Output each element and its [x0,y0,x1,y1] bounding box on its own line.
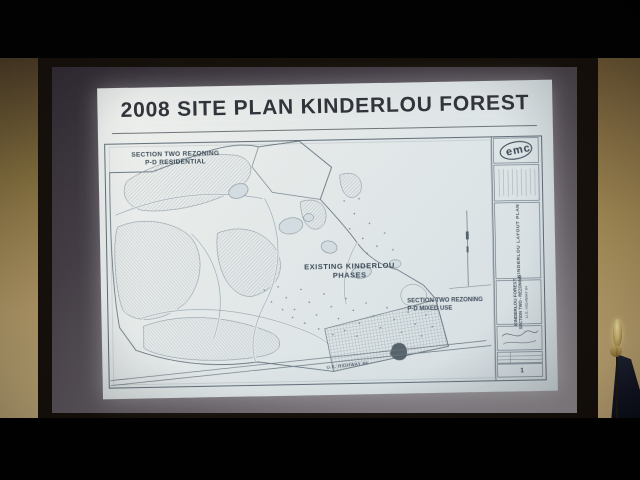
label-line: P-D MIXED USE [407,305,452,312]
projector-screen-frame: 2008 SITE PLAN KINDERLOU FOREST [38,54,598,420]
label-existing-kinderlou-phases: EXISTING KINDERLOU PHASES [290,260,408,280]
photo-of-projected-site-plan: 2008 SITE PLAN KINDERLOU FOREST [0,0,640,480]
label-line: SECTION TWO REZONING [407,297,483,304]
slide-title: 2008 SITE PLAN KINDERLOU FOREST [97,91,552,124]
black-band-bottom [0,418,640,480]
wall-left [0,50,42,422]
title-underline [112,125,537,134]
titleblock-drawing-name: KINDERLOU LAYOUT PLAN [496,202,542,279]
screen-surface: 2008 SITE PLAN KINDERLOU FOREST [52,67,577,413]
site-plan-drawing: SECTION TWO REZONING P-D RESIDENTIAL EXI… [104,135,547,389]
project-location: U.S. HIGHWAY 84 [523,275,529,329]
titleblock-project-info: KINDERLOU FOREST SECTION TWO - REZONING … [498,280,544,325]
label-line: SECTION TWO REZONING [131,150,219,159]
label-section-two-mixed-use: SECTION TWO REZONING P-D MIXED USE [407,296,511,313]
sheet-number: 1 [499,364,544,378]
label-section-two-residential: SECTION TWO REZONING P-D RESIDENTIAL [116,150,234,168]
black-band-top [0,0,640,58]
projected-slide: 2008 SITE PLAN KINDERLOU FOREST [97,80,558,400]
drawing-name-text: KINDERLOU LAYOUT PLAN [516,203,522,277]
label-line: P-D RESIDENTIAL [145,158,206,166]
flagpole-finial [613,319,622,347]
project-info-lines: KINDERLOU FOREST SECTION TWO - REZONING … [512,275,529,329]
label-line: PHASES [333,270,367,280]
